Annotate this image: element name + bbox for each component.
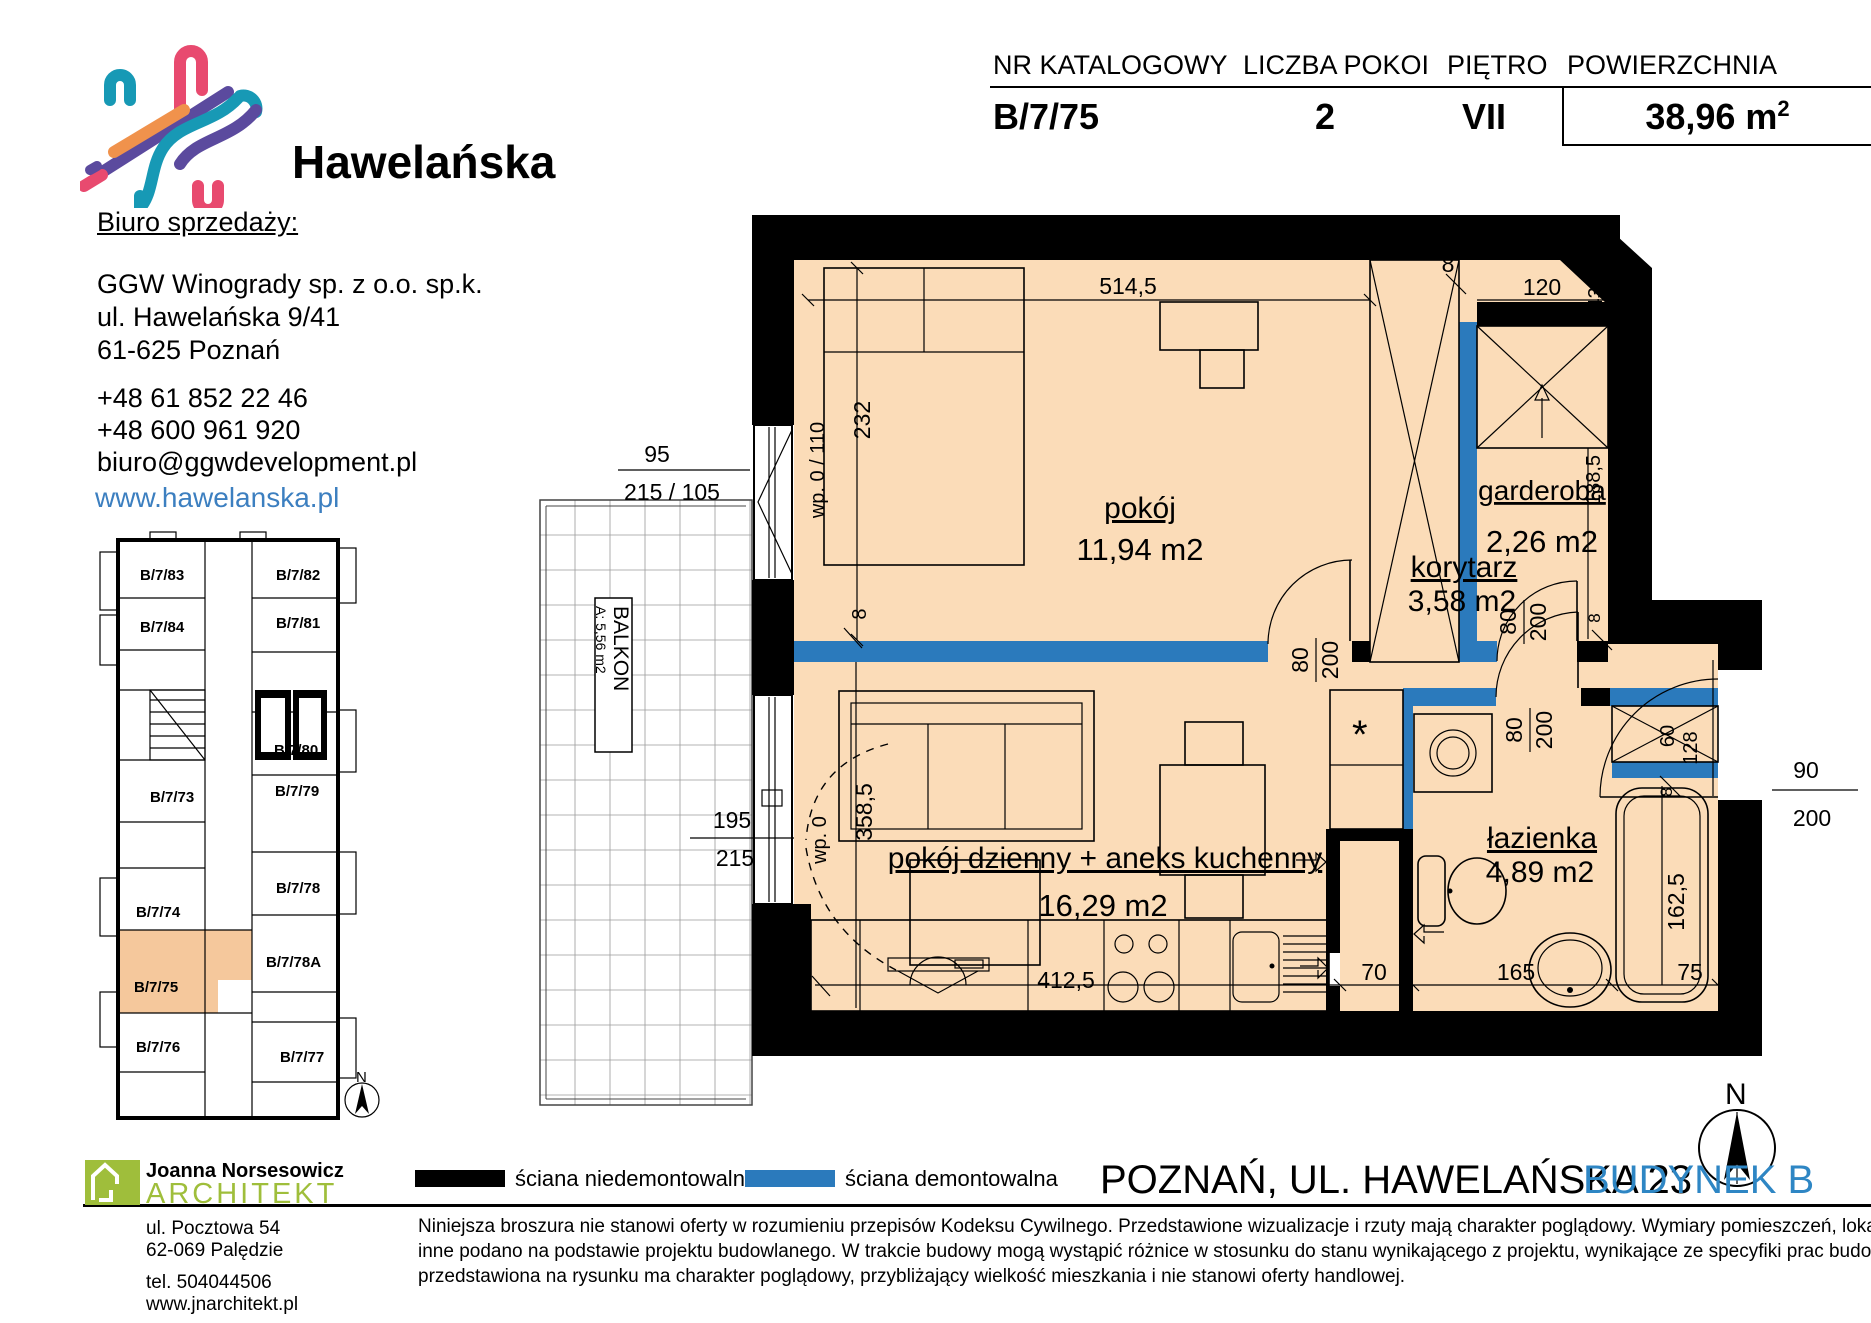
- svg-text:80: 80: [1501, 717, 1527, 743]
- room-name-pokoj: pokój: [1104, 492, 1176, 525]
- floor-value: VII: [1462, 96, 1506, 138]
- dim-90: 90: [1793, 757, 1819, 783]
- apartment-floor-plan: BALKON A: 5,56 m2: [430, 150, 1871, 1210]
- mini-compass-icon: N: [345, 1069, 379, 1117]
- svg-text:N: N: [1725, 1078, 1747, 1111]
- unit-label[interactable]: B/7/76: [136, 1039, 180, 1056]
- dim-8: 8: [1657, 787, 1676, 796]
- email-address[interactable]: biuro@ggwdevelopment.pl: [97, 446, 417, 478]
- svg-text:80: 80: [1287, 647, 1313, 673]
- phone-2[interactable]: +48 600 961 920: [97, 414, 300, 446]
- dim-8: 8: [1585, 613, 1604, 622]
- unit-label[interactable]: B/7/81: [276, 615, 320, 632]
- dim-wp-0-110: wp. 0 / 110: [807, 422, 829, 519]
- svg-text:80: 80: [1495, 609, 1521, 635]
- dim-215-105: 215 / 105: [624, 479, 720, 505]
- unit-label[interactable]: B/7/83: [140, 567, 184, 584]
- architect-street: ul. Pocztowa 54: [146, 1218, 280, 1240]
- fridge-symbol: *: [1352, 713, 1368, 757]
- dim-128: 128: [1680, 731, 1702, 764]
- dim-165: 165: [1497, 959, 1535, 985]
- dim-60: 60: [1657, 725, 1679, 747]
- col-rooms-header: LICZBA POKOI: [1243, 50, 1429, 81]
- unit-label-highlighted[interactable]: B/7/75: [134, 979, 178, 996]
- dim-wp-0: wp. 0: [809, 816, 831, 865]
- architect-city: 62-069 Palędzie: [146, 1240, 283, 1262]
- balcony: BALKON A: 5,56 m2: [540, 500, 752, 1105]
- architect-website[interactable]: www.jnarchitekt.pl: [146, 1294, 298, 1316]
- rooms-count-value: 2: [1315, 96, 1335, 138]
- hash-logo-icon: [84, 51, 256, 208]
- dim-358-5: 358,5: [851, 783, 877, 841]
- svg-text:200: 200: [1317, 641, 1343, 679]
- stairwell: [150, 690, 205, 760]
- dim-215: 215: [716, 845, 754, 871]
- disclaimer-line-3: przedstawiona na rysunku ma charakter po…: [418, 1266, 1405, 1288]
- dim-75: 75: [1677, 959, 1703, 985]
- col-floor-header: PIĘTRO: [1447, 50, 1548, 81]
- architect-phone[interactable]: tel. 504044506: [146, 1272, 272, 1294]
- dim-8: 8: [849, 608, 871, 619]
- phone-1[interactable]: +48 61 852 22 46: [97, 382, 308, 414]
- dim-514-5: 514,5: [1099, 273, 1157, 299]
- highlighted-unit-shape[interactable]: [120, 930, 252, 1013]
- room-area-living: 16,29 m2: [1038, 888, 1167, 923]
- legend-demolishable-wall-swatch: [745, 1170, 835, 1187]
- room-name-lazienka: łazienka: [1487, 822, 1597, 855]
- unit-label[interactable]: B/7/78A: [266, 954, 321, 971]
- dim-70: 70: [1361, 959, 1387, 985]
- footer-rule: [83, 1204, 1871, 1207]
- svg-text:200: 200: [1531, 711, 1557, 749]
- balcony-door: [754, 695, 792, 904]
- balcony-label: BALKON: [609, 606, 632, 691]
- window-pokoj: [754, 425, 792, 580]
- col-catalog-header: NR KATALOGOWY: [993, 50, 1228, 81]
- disclaimer-line-1: Niniejsza broszura nie stanowi oferty w …: [418, 1216, 1871, 1238]
- unit-label[interactable]: B/7/84: [140, 619, 185, 636]
- unit-label[interactable]: B/7/77: [280, 1049, 324, 1066]
- balcony-area-label: A: 5,56 m2: [593, 606, 609, 674]
- unit-label[interactable]: B/7/73: [150, 789, 194, 806]
- table-header-rule: [990, 86, 1562, 88]
- disclaimer-line-2: inne podano na podstawie projektu budowl…: [418, 1241, 1871, 1263]
- architect-logo-icon: [85, 1160, 140, 1205]
- dim-195: 195: [713, 807, 751, 833]
- dim-8: 8: [1442, 251, 1455, 277]
- architect-title: ARCHITEKT: [146, 1178, 337, 1211]
- dim-120: 120: [1523, 274, 1561, 300]
- col-area-header: POWIERZCHNIA: [1567, 50, 1777, 81]
- legend-demolishable-wall-label: ściana demontowalna: [845, 1166, 1058, 1192]
- catalog-number-value: B/7/75: [993, 96, 1099, 138]
- unit-label[interactable]: B/7/80: [274, 742, 318, 759]
- dim-162-5: 162,5: [1663, 873, 1689, 931]
- dim-200: 200: [1793, 805, 1831, 831]
- unit-label[interactable]: B/7/82: [276, 567, 320, 584]
- building-overview-plan: B/7/83 B/7/82 B/7/84 B/7/81 B/7/80 B/7/7…: [85, 525, 400, 1170]
- dim-232: 232: [849, 401, 875, 439]
- dim-412-5: 412,5: [1037, 967, 1095, 993]
- legend-solid-wall-label: ściana niedemontowalna: [515, 1166, 757, 1192]
- sales-office-heading: Biuro sprzedaży:: [97, 206, 298, 238]
- dim-43-5: 43,5: [1585, 271, 1607, 310]
- dim-95: 95: [644, 441, 670, 467]
- svg-text:200: 200: [1525, 603, 1551, 641]
- company-street: ul. Hawelańska 9/41: [97, 301, 340, 333]
- unit-label[interactable]: B/7/74: [136, 904, 181, 921]
- dim-188-5: 188,5: [1583, 455, 1605, 505]
- company-city: 61-625 Poznań: [97, 334, 280, 366]
- room-name-korytarz: korytarz: [1411, 551, 1518, 584]
- website-link[interactable]: www.hawelanska.pl: [95, 482, 339, 514]
- area-value-box: 38,96 m2: [1562, 86, 1871, 146]
- room-area-pokoj: 11,94 m2: [1077, 532, 1204, 567]
- brochure-page: Hawelańska Biuro sprzedaży: GGW Winograd…: [0, 0, 1871, 1323]
- area-value: 38,96 m2: [1564, 96, 1871, 138]
- room-area-lazienka: 4,89 m2: [1486, 856, 1594, 889]
- unit-label[interactable]: B/7/79: [275, 783, 319, 800]
- room-name-living: pokój dzienny + aneks kuchenny: [888, 842, 1322, 875]
- building-label: BUDYNEK B: [1583, 1158, 1814, 1203]
- legend-solid-wall-swatch: [415, 1170, 505, 1187]
- unit-label[interactable]: B/7/78: [276, 880, 320, 897]
- company-name: GGW Winogrady sp. z o.o. sp.k.: [97, 268, 483, 300]
